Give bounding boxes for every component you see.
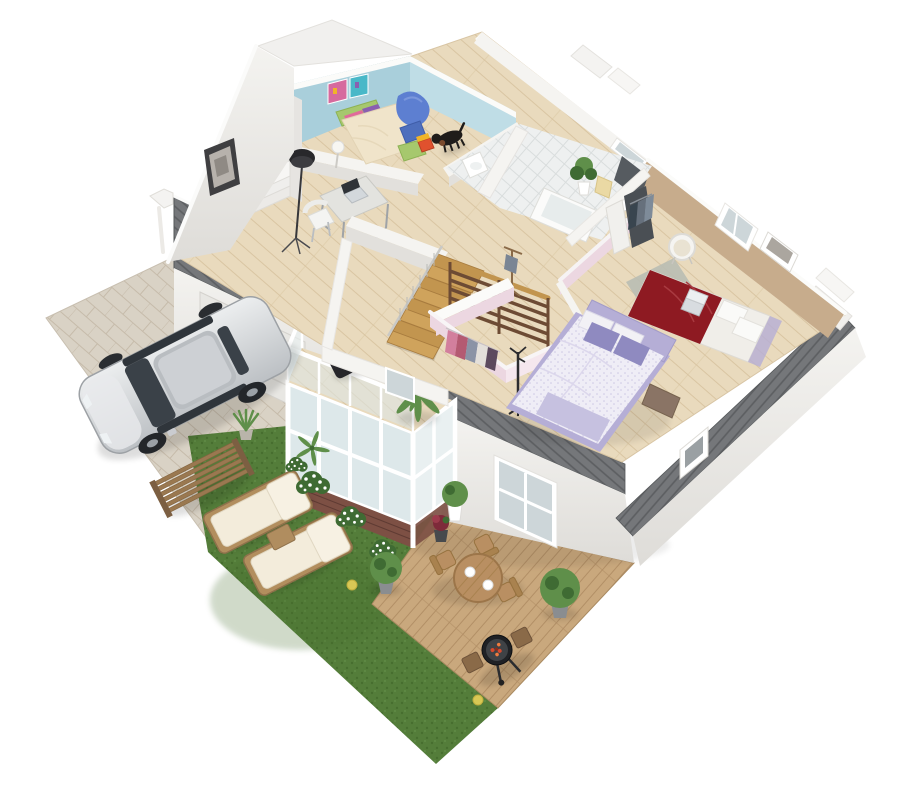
lawn-bush: [370, 552, 402, 596]
deck-table: [454, 554, 502, 602]
floorplan-3d-render-stage: 3D isometric floor plan render — upper f…: [0, 0, 920, 790]
yellow-ball-1: [347, 580, 357, 590]
yellow-ball-2: [473, 695, 483, 705]
deck-bush: [540, 568, 580, 620]
floorplan-3d-render: 3D isometric floor plan render — upper f…: [0, 0, 920, 790]
